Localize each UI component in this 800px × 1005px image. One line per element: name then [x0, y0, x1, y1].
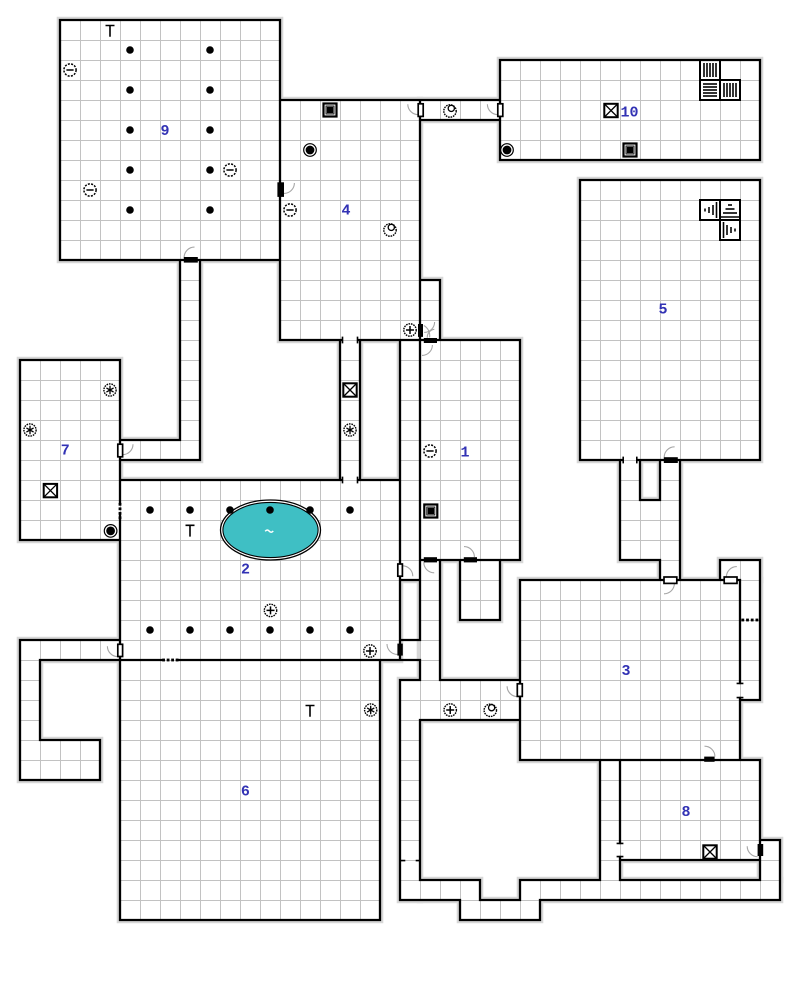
svg-text:9: 9: [160, 123, 169, 140]
svg-text:1: 1: [460, 444, 469, 461]
svg-text:6: 6: [241, 783, 250, 800]
svg-text:4: 4: [341, 202, 350, 219]
svg-text:7: 7: [61, 443, 70, 460]
svg-text:3: 3: [621, 663, 630, 680]
svg-text:5: 5: [658, 301, 667, 318]
svg-text:2: 2: [241, 562, 250, 579]
svg-text:8: 8: [681, 804, 690, 821]
svg-text:10: 10: [620, 104, 638, 121]
